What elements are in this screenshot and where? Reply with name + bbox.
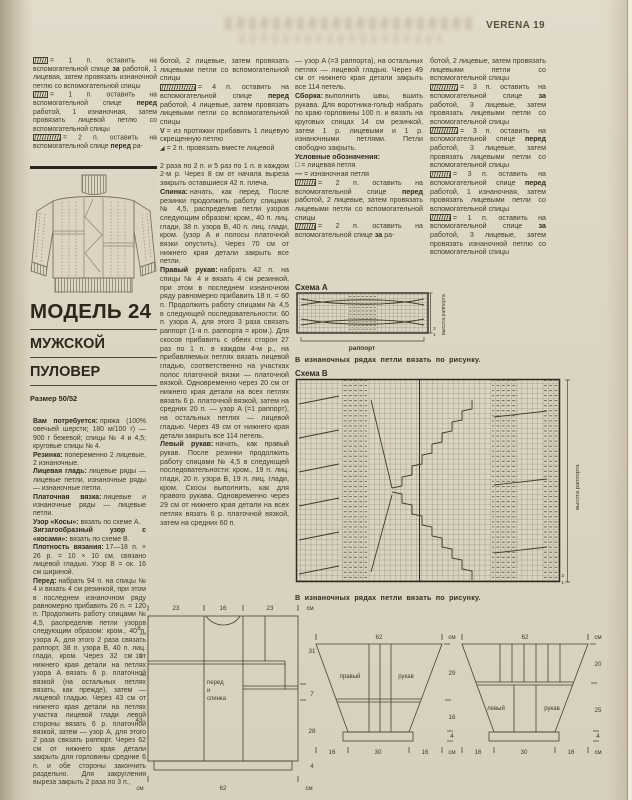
cable-2-2-back-icon [295,223,316,230]
measurement-label: 62 [522,634,529,641]
rapport-label: раппорт [349,345,375,352]
measurement-label: 8 [137,625,141,632]
measurement-label: 20 [595,661,602,668]
chart-a-caption: В изнаночных рядах петли вязать по рисун… [295,355,530,364]
row-number: 3 [561,573,564,579]
piece-label: перед [207,680,224,686]
page-spine-shadow [0,0,32,800]
unit-label: см [305,785,312,792]
row-number: 3 [433,326,436,332]
page-right-shadow [606,0,628,800]
legend-title: Условные обозначения: [295,153,423,162]
legend-item: = 3 п. оставить на вспомогательной спице… [430,83,546,127]
column-3: — узор A (=3 раппорта), на остальных пет… [295,57,423,285]
piece-label: рукав [398,674,414,680]
sweater-photo [30,166,157,299]
unit-label: см [594,749,601,756]
measurement-label: 25 [595,707,602,714]
legend-item: = 2 п. оставить на вспомогательной спице… [295,222,423,239]
legend-item: = 2 п. оставить на вспомогательной спице… [33,134,157,151]
cable-3-3-back-icon [430,84,458,91]
chart-a: 3 1 высота раппорта раппорт [295,291,480,355]
unit-label: см [136,785,143,792]
paragraph: Лицевая гладь:лицевые ряды — лицевые пет… [33,468,146,493]
measurement-label: 16 [422,749,429,756]
legend-item: —= изнаночная петля [295,170,423,179]
measurement-label: 4 [596,733,600,740]
row-number: 1 [433,332,436,338]
column-1-legend: = 1 п. оставить на вспомогательной спице… [33,57,157,151]
paragraph: Правый рукав:набрать 42 п. на спицы № 4 … [160,266,289,440]
schematic-right-sleeve: 62 см 29 16 4 16 30 16 см правый рукав [306,630,460,764]
subtitle-line2: ПУЛОВЕР [30,358,157,386]
make-one-icon: V [160,127,165,136]
chart-a-height-label: высота раппорта [441,294,447,335]
measurement-label: 62 [376,634,383,641]
measurement-label: 23 [173,605,180,612]
legend-item: = 1 п. оставить на вспомогательной спице… [430,214,546,258]
piece-label: спинка [207,696,227,702]
page-number: 19 [533,20,545,31]
paragraph: Левый рукав:начать, как правый рукав. По… [160,440,289,527]
column-2: ботой, 2 лицевые, затем провязать лицевы… [160,57,289,605]
cable-2-2-front-icon [33,134,61,141]
paragraph: Плотность вязания:17—18 п. × 26 р. = 10 … [33,544,146,578]
legend-item: = 4 п. оставить на вспомогательной спице… [160,83,289,127]
unit-label: см [594,634,601,641]
cable-1-1-front-icon [33,91,48,98]
unit-label: см [306,605,313,612]
legend-item: = 1 п. оставить на вспомогательной спице… [33,57,157,91]
measurement-label: 43 [136,717,143,724]
cable-1-1-back-icon [33,57,48,64]
measurement-label: 30 [375,749,382,756]
paragraph: Платочная вязка:лицевые и изнаночные ряд… [33,494,146,519]
legend-item: V= из протяжки прибавить 1 лицевую скрещ… [160,127,289,144]
measurement-label: 16 [329,749,336,756]
chart-b-caption: В изнаночных рядах петли вязать по рисун… [295,593,535,602]
cable-1-3-back-icon [430,214,451,221]
measurement-label: 16 [568,749,575,756]
schematic-front-back: 23 16 23 см 8 19 43 31 7 28 4 см 62 см п… [128,600,328,798]
sweater-drawing [30,169,157,296]
magazine-page: VERENA 19 = 1 п. оставить на вспомогател… [0,0,632,800]
paragraph: Вам потребуется:пряжа (100% овечьей шерс… [33,418,146,452]
measurement-label: 4 [310,763,314,770]
cable-3-1-front-icon [430,171,451,178]
paragraph: 2 раза по 2 п. и 5 раз по 1 п. в каждом … [160,162,289,188]
chart-b-title: Схема B [295,369,328,378]
page-header: VERENA 19 [460,20,545,31]
title-block: МОДЕЛЬ 24 МУЖСКОЙ ПУЛОВЕР Размер 50/52 [30,300,157,403]
measurement-label: 16 [220,605,227,612]
spacer [160,154,289,162]
piece-label: правый [340,673,361,680]
page-edge [627,0,632,800]
legend-item: = 3 п. оставить на вспомогательной спице… [430,127,546,171]
piece-label: левый [487,705,505,712]
paragraph: — узор A (=3 раппорта), на остальных пет… [295,57,423,92]
measurement-label: 19 [136,653,143,660]
legend-item: = 1 п. оставить на вспомогательной спице… [33,91,157,134]
paragraph: Спинка:начать, как перед. После резинки … [160,188,289,266]
schematic-left-sleeve: 62 см 20 25 4 16 30 16 см левый рукав [452,630,606,764]
chart-b: 3 1 высота раппорта [295,378,595,591]
measurement-label: 23 [267,605,274,612]
subtitle-line1: МУЖСКОЙ [30,330,157,358]
magazine-name: VERENA [486,20,530,31]
cable-4-4-front-icon [160,84,196,91]
cable-2-2-front-icon [295,179,316,186]
legend-continuation: ботой, 2 лицевые, затем провязать лицевы… [160,57,289,83]
paragraph: Резинка:попеременно 2 лицевые, 2 изнаноч… [33,452,146,469]
row-number: 1 [561,580,564,586]
measurement-label: 30 [521,749,528,756]
page-bleedthrough [225,15,473,47]
piece-label: рукав [544,706,560,712]
paragraph: Сборка:выполнить швы, вшить рукава. Для … [295,92,423,153]
legend-item: □= лицевая петля [295,161,423,170]
paragraph: Зигзагообразный узор с «косами»:вязать п… [33,527,146,544]
k2tog-icon: ◢ [160,145,165,154]
measurement-label: 16 [475,749,482,756]
legend-continuation: ботой, 2 лицевые, затем провязать лицевы… [430,57,546,83]
column-4: ботой, 2 лицевые, затем провязать лицевы… [430,57,546,257]
knit-stitch-icon: □ [295,161,299,170]
cable-3-3-front-icon [430,127,458,134]
measurement-label: 62 [220,785,227,792]
piece-label: и [207,688,210,694]
legend-item: = 3 п. оставить на вспомогательной спице… [430,170,546,214]
purl-stitch-icon: — [295,170,302,179]
model-title: МОДЕЛЬ 24 [30,300,157,330]
size-label: Размер 50/52 [30,394,157,403]
chart-b-height-label: высота раппорта [575,464,581,510]
legend-item: = 2 п. оставить на вспомогательной спице… [295,179,423,223]
legend-item: ◢= 2 п. провязать вместе лицевой [160,144,289,154]
